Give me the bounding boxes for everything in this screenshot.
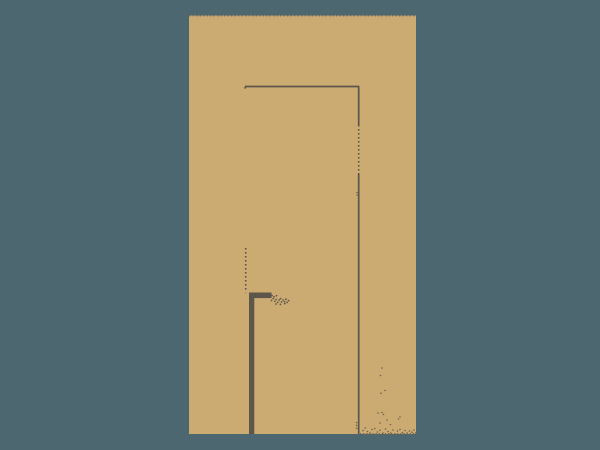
texture-dot xyxy=(406,432,408,434)
texture-dot xyxy=(383,414,385,416)
texture-dot xyxy=(275,299,277,301)
texture-dot xyxy=(409,430,411,432)
texture-dot xyxy=(274,301,276,303)
texture-dot xyxy=(377,431,379,433)
texture-dot xyxy=(284,301,286,303)
texture-dot xyxy=(369,432,371,434)
texture-dot xyxy=(380,392,382,394)
door-frame-corner-tick xyxy=(244,87,246,89)
texture-dot xyxy=(367,434,369,436)
texture-dot xyxy=(277,302,279,304)
texture-dot xyxy=(382,432,384,434)
texture-dot xyxy=(411,431,413,433)
texture-dot xyxy=(356,428,358,430)
texture-dot xyxy=(398,418,400,420)
texture-dot xyxy=(280,304,282,306)
texture-dot xyxy=(379,422,381,424)
texture-dot xyxy=(386,419,388,421)
texture-dot xyxy=(413,429,415,431)
canvas-stage[interactable] xyxy=(0,0,600,450)
texture-dot xyxy=(377,412,379,414)
texture-dot xyxy=(281,301,283,303)
texture-dot xyxy=(387,431,389,433)
texture-dot xyxy=(285,298,287,300)
texture-dot xyxy=(402,432,404,434)
texture-dot xyxy=(374,428,376,430)
door-handle[interactable] xyxy=(249,293,272,299)
texture-dot xyxy=(271,300,273,302)
texture-dot xyxy=(271,295,273,297)
texture-dot xyxy=(275,303,277,305)
texture-dot xyxy=(402,434,404,436)
texture-dot xyxy=(362,430,364,432)
texture-dot xyxy=(381,367,383,369)
texture-dot xyxy=(394,433,396,435)
texture-dot xyxy=(384,390,386,392)
texture-dot xyxy=(381,412,383,414)
texture-dot xyxy=(282,299,284,301)
texture-dot xyxy=(397,430,399,432)
texture-dot xyxy=(399,416,401,418)
door-leaf-edge xyxy=(249,293,254,435)
texture-dot xyxy=(356,425,358,427)
wall-panel xyxy=(189,16,416,435)
door-sketch-canvas[interactable] xyxy=(0,0,600,450)
texture-dot xyxy=(367,431,369,433)
texture-dot xyxy=(392,429,394,431)
texture-dot xyxy=(390,424,392,426)
texture-dot xyxy=(380,375,382,377)
texture-dot xyxy=(272,298,274,300)
texture-dot xyxy=(276,295,278,297)
texture-dot xyxy=(280,298,282,300)
texture-dot xyxy=(371,429,373,431)
texture-dot xyxy=(284,303,286,305)
texture-dot xyxy=(379,429,381,431)
texture-dot xyxy=(385,428,387,430)
texture-dot xyxy=(415,432,417,434)
texture-dot xyxy=(364,427,366,429)
texture-dot xyxy=(356,194,358,196)
texture-dot xyxy=(278,299,280,301)
texture-dot xyxy=(390,432,392,434)
texture-dot xyxy=(286,302,288,304)
texture-dot xyxy=(356,192,358,194)
texture-dot xyxy=(356,422,358,424)
texture-dot xyxy=(273,296,275,298)
texture-dot xyxy=(288,300,290,302)
texture-dot xyxy=(399,429,401,431)
texture-dot xyxy=(404,430,406,432)
texture-dot xyxy=(385,434,387,436)
